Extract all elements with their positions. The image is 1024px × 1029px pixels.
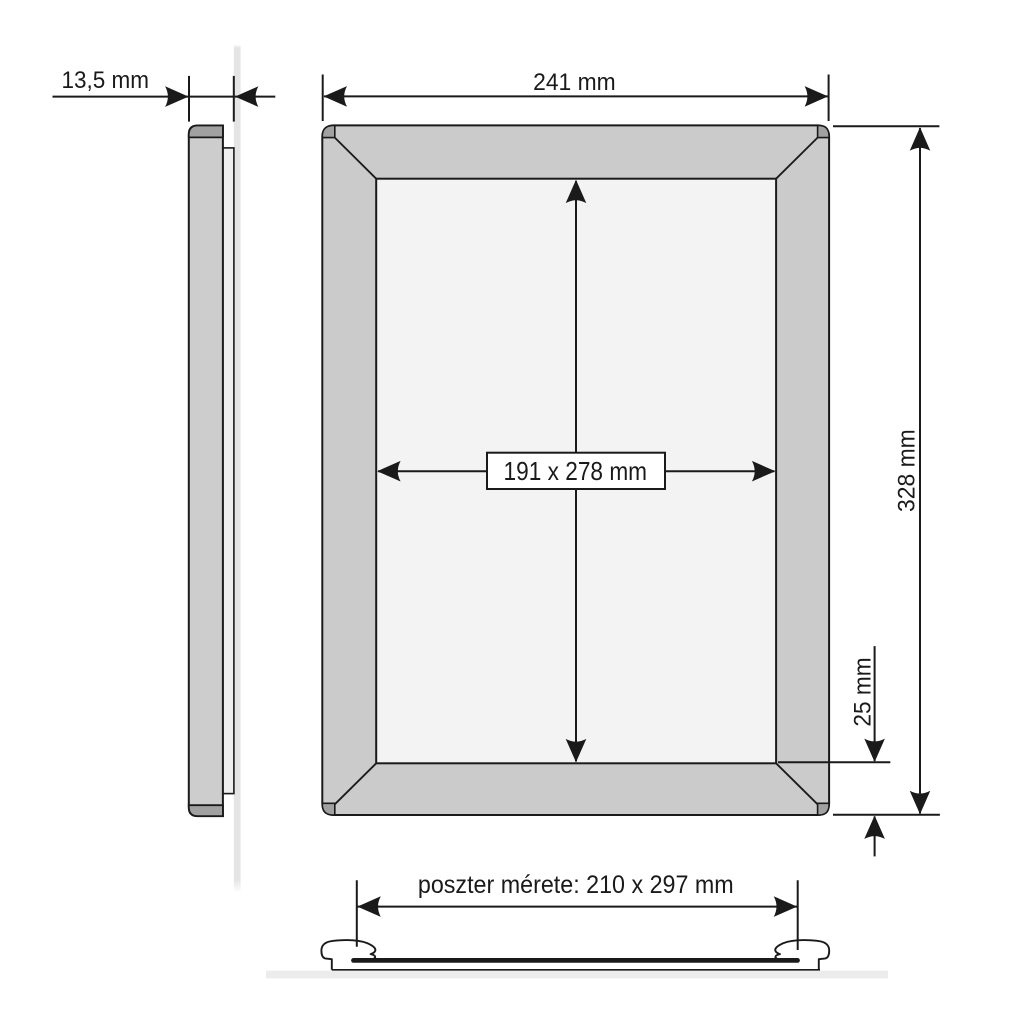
svg-text:13,5 mm: 13,5 mm: [62, 67, 150, 94]
svg-text:328 mm: 328 mm: [893, 429, 920, 512]
svg-text:25 mm: 25 mm: [849, 657, 876, 726]
svg-text:poszter mérete: 210 x 297 mm: poszter mérete: 210 x 297 mm: [418, 871, 734, 899]
svg-text:241 mm: 241 mm: [533, 69, 616, 96]
svg-text:191 x 278 mm: 191 x 278 mm: [504, 456, 648, 486]
